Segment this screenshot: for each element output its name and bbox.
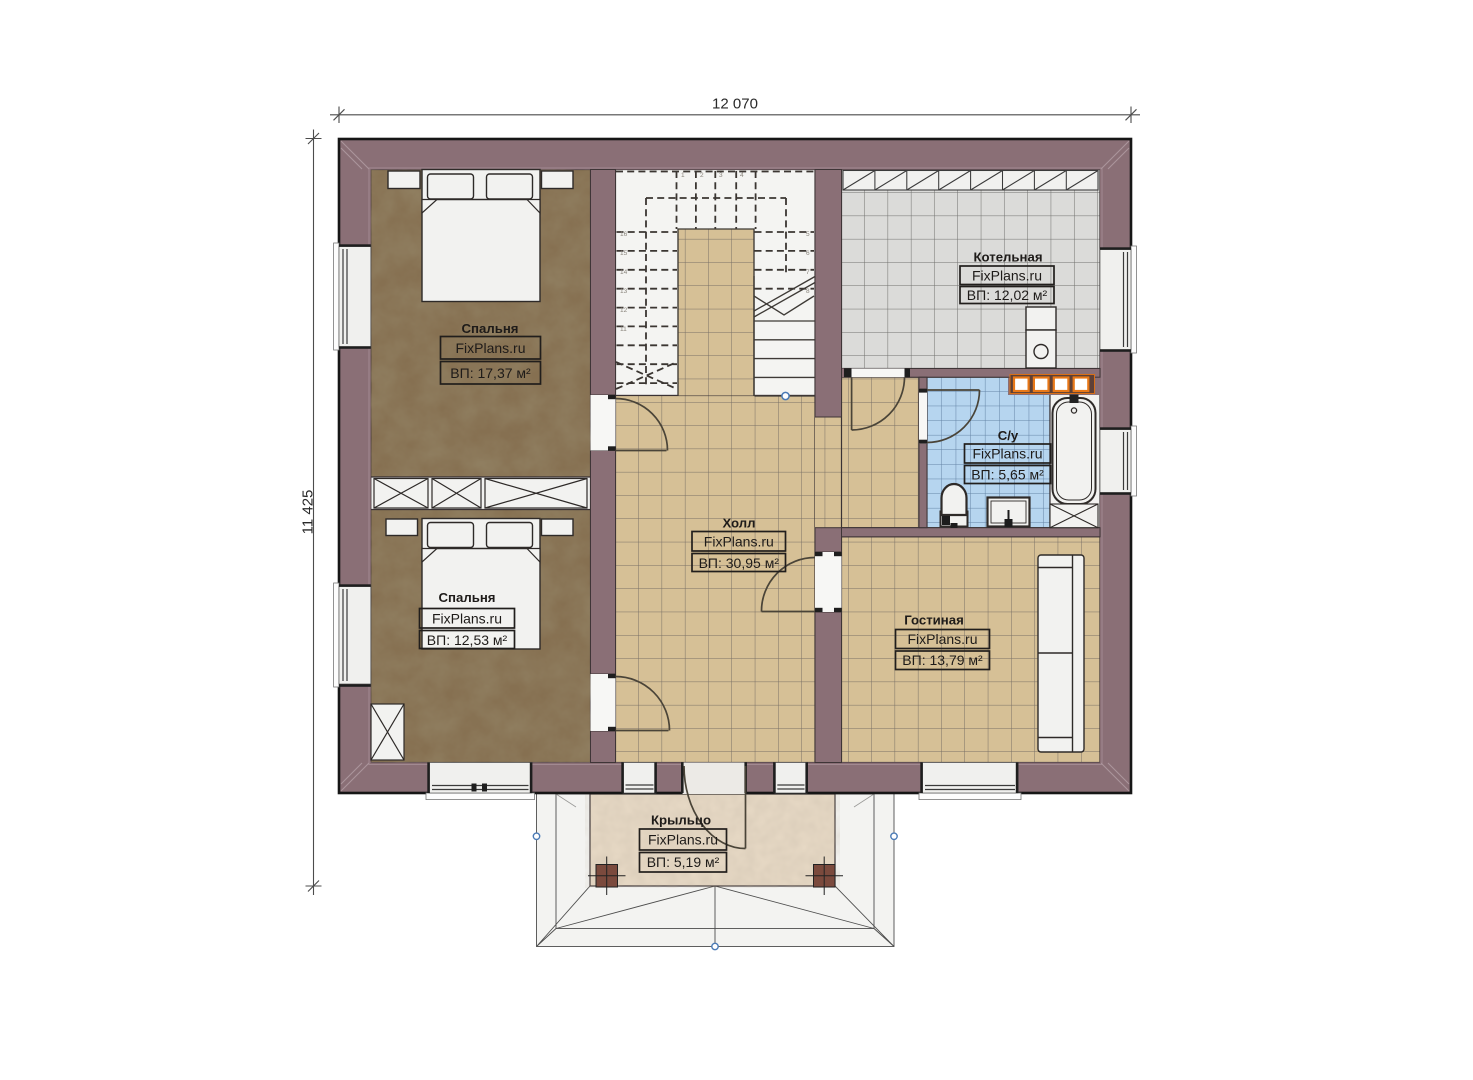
- svg-text:ВП: 5,19 м²: ВП: 5,19 м²: [647, 854, 720, 870]
- svg-text:12: 12: [620, 307, 628, 314]
- svg-text:Спальня: Спальня: [439, 590, 496, 605]
- svg-text:FixPlans.ru: FixPlans.ru: [972, 268, 1042, 284]
- svg-text:ВП: 12,53 м²: ВП: 12,53 м²: [427, 632, 508, 648]
- svg-text:7: 7: [806, 269, 810, 276]
- svg-text:6: 6: [806, 250, 810, 257]
- svg-text:ВП: 5,65 м²: ВП: 5,65 м²: [971, 467, 1044, 483]
- svg-text:11 425: 11 425: [300, 490, 317, 535]
- svg-text:Крыльцо: Крыльцо: [651, 813, 711, 828]
- svg-text:FixPlans.ru: FixPlans.ru: [432, 611, 502, 627]
- svg-text:ВП: 17,37 м²: ВП: 17,37 м²: [450, 365, 531, 381]
- svg-text:FixPlans.ru: FixPlans.ru: [648, 832, 718, 848]
- svg-text:2: 2: [700, 172, 704, 179]
- svg-text:5: 5: [806, 231, 810, 238]
- svg-text:С/у: С/у: [998, 428, 1019, 443]
- svg-text:ВП: 13,79 м²: ВП: 13,79 м²: [902, 652, 983, 668]
- svg-text:Спальня: Спальня: [462, 321, 519, 336]
- svg-text:3: 3: [719, 172, 723, 179]
- svg-text:1: 1: [681, 172, 685, 179]
- svg-text:16: 16: [620, 231, 628, 238]
- svg-text:8: 8: [806, 288, 810, 295]
- svg-text:15: 15: [620, 250, 628, 257]
- svg-text:ВП: 12,02 м²: ВП: 12,02 м²: [967, 287, 1048, 303]
- svg-text:Холл: Холл: [722, 516, 755, 531]
- svg-text:FixPlans.ru: FixPlans.ru: [972, 446, 1042, 462]
- svg-text:FixPlans.ru: FixPlans.ru: [704, 534, 774, 550]
- svg-text:13: 13: [620, 288, 628, 295]
- svg-text:4: 4: [740, 172, 744, 179]
- svg-text:ВП: 30,95 м²: ВП: 30,95 м²: [699, 555, 780, 571]
- svg-text:Котельная: Котельная: [973, 250, 1042, 265]
- svg-text:14: 14: [620, 269, 628, 276]
- svg-text:FixPlans.ru: FixPlans.ru: [907, 631, 977, 647]
- svg-text:12 070: 12 070: [712, 96, 758, 113]
- svg-text:FixPlans.ru: FixPlans.ru: [455, 340, 525, 356]
- svg-text:11: 11: [620, 326, 627, 333]
- svg-text:Гостиная: Гостиная: [904, 613, 964, 628]
